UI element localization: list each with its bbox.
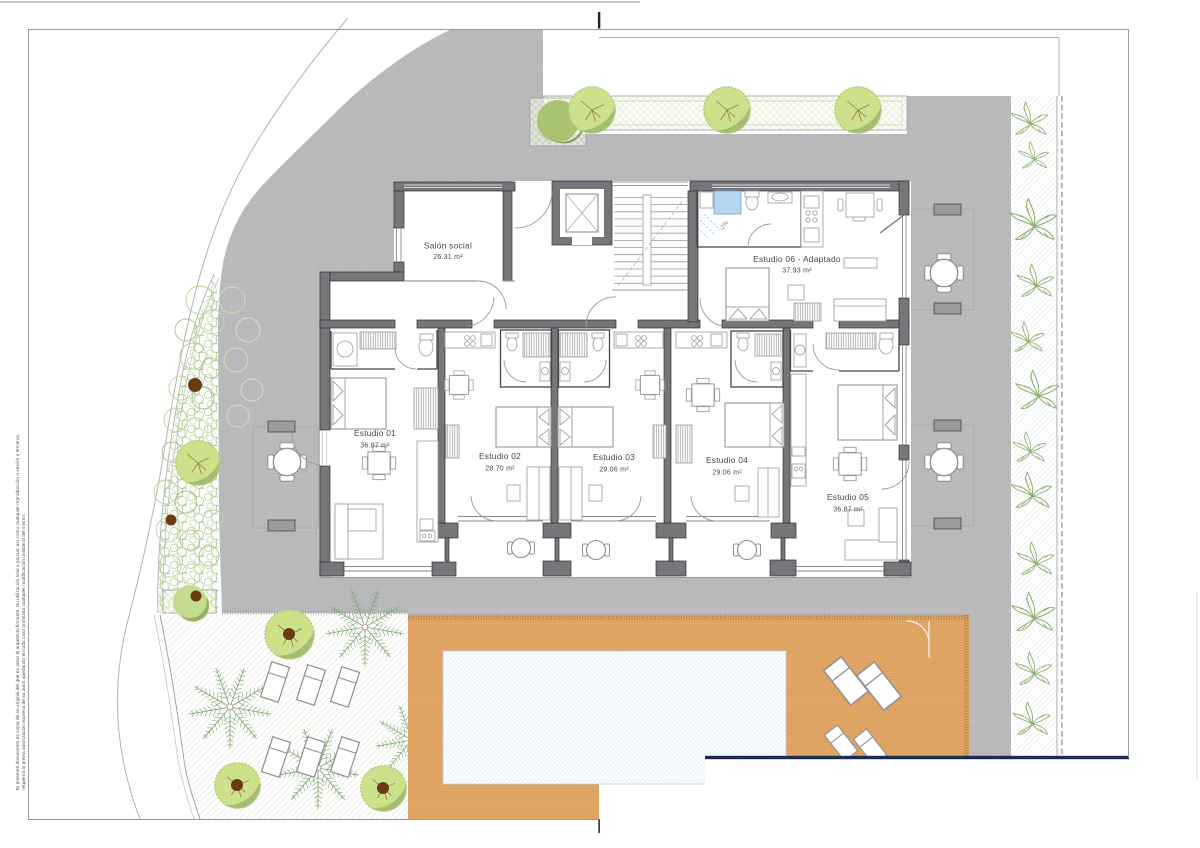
svg-text:36.87 m²: 36.87 m² [833, 507, 863, 514]
svg-text:36.87 m²: 36.87 m² [360, 443, 390, 450]
svg-text:26.31 m²: 26.31 m² [433, 254, 463, 261]
svg-text:Estudio 04: Estudio 04 [706, 455, 748, 465]
svg-text:29.06 m²: 29.06 m² [599, 467, 629, 474]
svg-text:Salón social: Salón social [424, 241, 472, 251]
svg-text:28.70 m²: 28.70 m² [485, 466, 515, 473]
svg-text:Estudio 05: Estudio 05 [827, 492, 869, 502]
svg-text:Estudio 03: Estudio 03 [593, 452, 635, 462]
svg-text:Estudio 02: Estudio 02 [479, 451, 521, 461]
svg-text:El presente documento es copia: El presente documento es copia de su ori… [15, 434, 21, 790]
svg-text:Estudio 01: Estudio 01 [354, 428, 396, 438]
svg-text:37.93 m²: 37.93 m² [782, 268, 812, 275]
svg-text:requerirá la previa autorizaci: requerirá la previa autorización expresa… [21, 514, 27, 790]
svg-text:Estudio 06 - Adaptado: Estudio 06 - Adaptado [753, 254, 841, 264]
svg-text:29.06 m²: 29.06 m² [712, 470, 742, 477]
